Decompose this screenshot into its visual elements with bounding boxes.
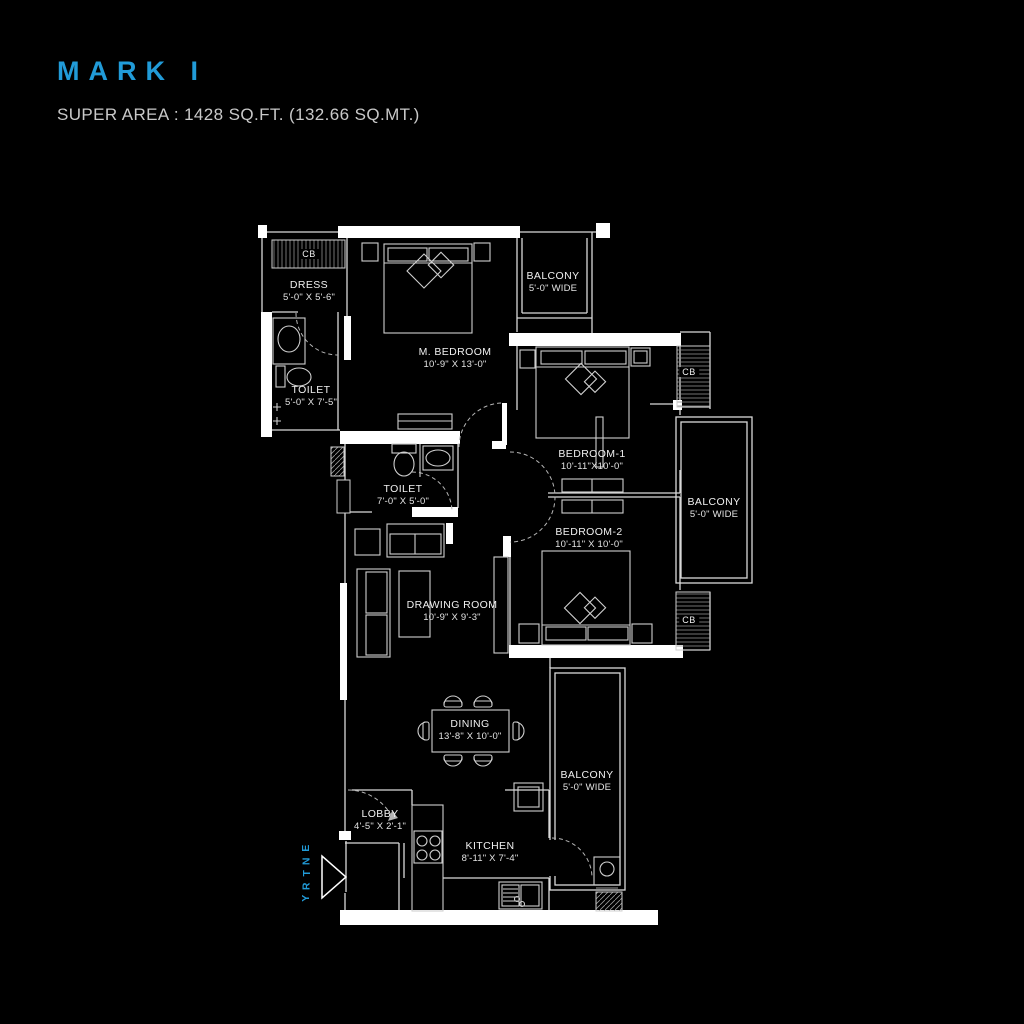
bedroom2-bed — [519, 551, 652, 645]
dining-table — [432, 710, 509, 752]
toilet1-fixtures — [273, 318, 311, 425]
balcony-right-outline — [676, 417, 752, 583]
door-leaf — [596, 417, 603, 467]
kitchen-fixtures — [412, 783, 543, 911]
coffee-table — [399, 571, 430, 637]
entry-label: ENTRY — [297, 842, 317, 905]
bedroom1-bed — [520, 347, 650, 438]
floorplan-page: MARK I SUPER AREA : 1428 SQ.FT. (132.66 … — [0, 0, 1024, 1024]
thick-walls — [258, 223, 683, 925]
toilet1-door-arc — [296, 313, 338, 355]
entry-arrow — [322, 856, 346, 898]
washing-machine — [594, 857, 620, 888]
master-bedroom-door-arc — [459, 403, 503, 447]
sofa-set — [355, 524, 508, 657]
cupboard-bedroom1 — [677, 346, 710, 407]
column — [331, 447, 344, 476]
floorplan-drawing — [0, 0, 1024, 1024]
shaft — [596, 892, 622, 911]
dining-set — [418, 696, 524, 766]
wardrobes — [562, 479, 623, 513]
tv-unit — [494, 557, 508, 653]
balcony-door-gap — [546, 840, 558, 876]
cupboard-bedroom2 — [676, 592, 710, 650]
toilet2-fixtures — [392, 444, 453, 477]
dresser — [398, 414, 452, 429]
column — [337, 480, 350, 513]
entry-door-arrow — [388, 811, 398, 821]
toilet2-door-arc — [412, 472, 452, 512]
master-bed — [362, 243, 490, 333]
entry-door-arc — [348, 790, 391, 815]
cupboard-dress — [272, 240, 345, 268]
